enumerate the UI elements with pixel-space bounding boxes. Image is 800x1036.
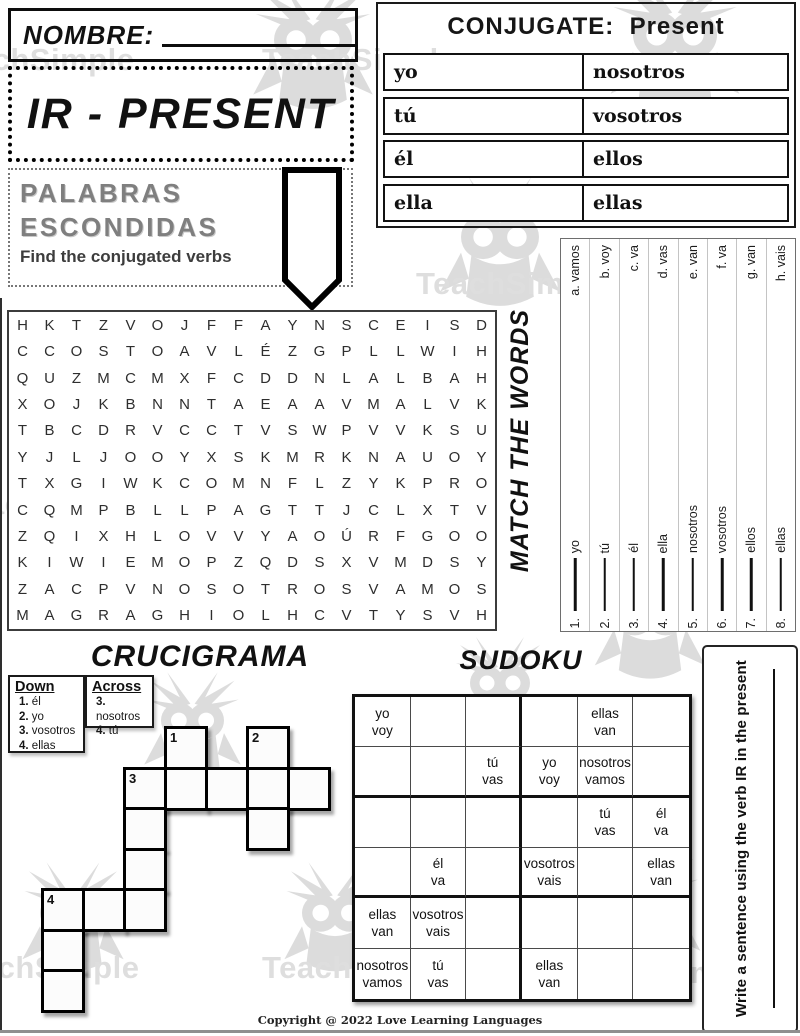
match-column: c. vaél3.: [620, 239, 649, 631]
word-search-letter: S: [441, 550, 468, 576]
word-search-letter: A: [387, 444, 414, 470]
word-search-letter: H: [171, 603, 198, 629]
word-search-letter: T: [360, 603, 387, 629]
word-search-letter: P: [90, 497, 117, 523]
sudoku-cell: [466, 697, 522, 747]
word-search-letter: M: [414, 576, 441, 602]
word-search-letter: R: [90, 603, 117, 629]
sudoku-cell: nosotrosvamos: [578, 747, 634, 797]
word-search-letter: I: [90, 470, 117, 496]
match-number-label: 7.: [744, 618, 758, 628]
sudoku-cell-line: vas: [482, 771, 503, 788]
word-search-letter: Z: [9, 576, 36, 602]
word-search-letter: D: [414, 550, 441, 576]
word-search-letter: D: [252, 365, 279, 391]
match-answer-blank: [691, 558, 694, 611]
word-search-letter: O: [144, 312, 171, 338]
sudoku-cell: [578, 898, 634, 948]
word-search-letter: C: [171, 418, 198, 444]
word-search-letter: G: [252, 497, 279, 523]
sudoku-cell-line: vamos: [362, 974, 402, 991]
sudoku-cell: yovoy: [355, 697, 411, 747]
sudoku-cell: [578, 949, 634, 999]
word-search-letter: N: [144, 576, 171, 602]
word-search-letter: N: [306, 365, 333, 391]
word-search-letter: N: [360, 444, 387, 470]
word-search-letter: J: [171, 312, 198, 338]
word-search-letter: V: [441, 391, 468, 417]
word-search-letter: L: [387, 338, 414, 364]
word-search-letter: A: [171, 338, 198, 364]
word-search-letter: A: [36, 576, 63, 602]
crossword-cell: 4: [41, 888, 85, 932]
pronoun-cell: él: [385, 142, 584, 176]
word-search-letter: T: [306, 497, 333, 523]
sudoku-cell-line: ellas: [591, 705, 619, 722]
word-search-letter: O: [441, 444, 468, 470]
word-search-letter: N: [171, 391, 198, 417]
down-clue: 1. él: [15, 695, 83, 710]
word-search-letter: U: [468, 418, 495, 444]
crossword-cell: [246, 767, 290, 811]
word-search-letter: P: [198, 550, 225, 576]
word-search-letter: X: [171, 365, 198, 391]
sudoku-cell-line: ellas: [535, 957, 563, 974]
pronoun-cell: vosotros: [584, 99, 787, 133]
sudoku-cell-line: va: [654, 822, 668, 839]
word-search-letter: U: [36, 365, 63, 391]
word-search-letter: O: [468, 470, 495, 496]
word-search-letter: O: [144, 338, 171, 364]
match-pronoun-label: tú: [598, 543, 612, 553]
word-search-letter: R: [117, 418, 144, 444]
word-search-letter: G: [63, 603, 90, 629]
match-pronoun-label: ellos: [744, 527, 758, 553]
word-search-letter: L: [414, 391, 441, 417]
crucigrama-title: CRUCIGRAMA: [91, 640, 309, 673]
pronoun-cell: nosotros: [584, 55, 787, 89]
word-search-letter: T: [225, 418, 252, 444]
sudoku-cell: yovoy: [522, 747, 578, 797]
word-search-letter: I: [36, 550, 63, 576]
sudoku-cell: [522, 697, 578, 747]
conjugate-row: yonosotros: [383, 53, 789, 91]
match-answer-blank: [603, 558, 606, 611]
match-number-label: 8.: [774, 618, 788, 628]
word-search-letter: A: [225, 391, 252, 417]
word-search-letter: O: [144, 444, 171, 470]
sudoku-cell-line: van: [650, 872, 672, 889]
word-search-letter: A: [279, 523, 306, 549]
crossword-cell: [123, 848, 167, 892]
worksheet-title: IR - PRESENT: [27, 90, 335, 139]
pronoun-cell: ellos: [584, 142, 787, 176]
match-title: MATCH THE WORDS: [506, 309, 535, 572]
word-search-letter: C: [63, 418, 90, 444]
word-search-letter: P: [333, 418, 360, 444]
match-answer-blank: [721, 558, 724, 611]
match-answer-blank: [750, 558, 753, 611]
word-search-letter: K: [414, 418, 441, 444]
word-search-letter: G: [63, 470, 90, 496]
sentence-blank-line: [773, 669, 775, 1008]
crossword-clue-number: 1: [170, 731, 205, 744]
sudoku-cell: élva: [411, 848, 467, 898]
down-label: Down: [15, 679, 83, 695]
sudoku-cell-line: tú: [599, 805, 610, 822]
word-search-letter: S: [441, 418, 468, 444]
word-search-letter: C: [225, 365, 252, 391]
word-search-letter: P: [414, 470, 441, 496]
word-search-letter: V: [333, 603, 360, 629]
sudoku-cell: [633, 898, 689, 948]
match-option-label: f. va: [715, 245, 729, 269]
word-search-letter: X: [9, 391, 36, 417]
word-search-letter: O: [171, 576, 198, 602]
word-search-letter: N: [306, 312, 333, 338]
crossword-cell: 1: [164, 726, 208, 770]
word-search-letter: T: [198, 391, 225, 417]
word-search-letter: Q: [36, 497, 63, 523]
match-number-label: 3.: [627, 618, 641, 628]
word-search-letter: R: [279, 576, 306, 602]
write-sentence-box: Write a sentence using the verb IR in th…: [702, 645, 798, 1033]
word-search-letter: A: [306, 391, 333, 417]
conjugate-row: ellaellas: [383, 184, 789, 222]
word-search-letter: I: [90, 550, 117, 576]
word-search-letter: Y: [387, 603, 414, 629]
word-search-letter: K: [387, 470, 414, 496]
sudoku-cell-line: ellas: [647, 855, 675, 872]
word-search-letter: A: [387, 391, 414, 417]
name-blank-line: [162, 44, 355, 47]
word-search-letter: C: [9, 338, 36, 364]
word-search-letter: C: [360, 312, 387, 338]
word-search-letter: A: [252, 312, 279, 338]
word-search-letter: V: [360, 576, 387, 602]
word-search-letter: L: [144, 497, 171, 523]
word-search-letter: K: [468, 391, 495, 417]
word-search-letter: T: [9, 470, 36, 496]
match-number-label: 5.: [686, 618, 700, 628]
word-search-letter: V: [333, 391, 360, 417]
word-search-letter: K: [252, 444, 279, 470]
word-search-letter: V: [252, 418, 279, 444]
word-search-letter: O: [225, 603, 252, 629]
sudoku-cell: [466, 798, 522, 848]
word-search-letter: R: [441, 470, 468, 496]
word-search-letter: U: [414, 444, 441, 470]
sudoku-cell-line: vas: [427, 974, 448, 991]
word-search-letter: L: [252, 603, 279, 629]
pronoun-cell: ellas: [584, 186, 787, 220]
word-search-letter: O: [441, 523, 468, 549]
word-search-letter: O: [441, 576, 468, 602]
word-search-letter: T: [279, 497, 306, 523]
word-search-letter: K: [144, 470, 171, 496]
word-search-letter: F: [198, 365, 225, 391]
word-search-letter: Z: [63, 365, 90, 391]
sudoku-cell: [522, 898, 578, 948]
sudoku-cell: ellasvan: [633, 848, 689, 898]
word-search-letter: L: [387, 497, 414, 523]
sudoku-cell: [633, 747, 689, 797]
match-answer-blank: [574, 558, 577, 611]
sudoku-cell: túvas: [411, 949, 467, 999]
sudoku-cell-line: van: [594, 722, 616, 739]
word-search-letter: H: [468, 365, 495, 391]
word-search-letter: S: [468, 576, 495, 602]
word-search-letter: É: [252, 338, 279, 364]
crucigrama-title-wrap: CRUCIGRAMA: [25, 640, 375, 674]
word-search-letter: Z: [333, 470, 360, 496]
page-bottom-edge: [0, 1030, 800, 1033]
sudoku-cell-line: nosotros: [356, 957, 408, 974]
word-search-letter: B: [414, 365, 441, 391]
word-search-letter: S: [441, 312, 468, 338]
word-search-letter: S: [279, 418, 306, 444]
word-search-letter: L: [333, 365, 360, 391]
word-search-letter: Z: [225, 550, 252, 576]
word-search-letter: M: [90, 365, 117, 391]
sudoku-cell-line: nosotros: [579, 754, 631, 771]
sudoku-cell: [578, 848, 634, 898]
word-search-letter: O: [225, 576, 252, 602]
word-search-letter: C: [306, 603, 333, 629]
sudoku-cell: ellasvan: [578, 697, 634, 747]
sudoku-cell: [633, 949, 689, 999]
across-clue: 3. nosotros: [92, 695, 152, 724]
word-search-letter: E: [117, 550, 144, 576]
crossword-cell: [246, 807, 290, 851]
sudoku-cell: [466, 949, 522, 999]
sudoku-cell-line: yo: [375, 705, 389, 722]
conjugate-section: CONJUGATE: Present yonosotrostúvosotrosé…: [376, 2, 796, 228]
name-label: NOMBRE:: [23, 20, 154, 51]
sudoku-cell: vosotrosvais: [522, 848, 578, 898]
word-search-letter: B: [36, 418, 63, 444]
word-search-letter: N: [144, 391, 171, 417]
word-search-letter: G: [414, 523, 441, 549]
word-search-letter: Z: [279, 338, 306, 364]
sudoku-cell: nosotrosvamos: [355, 949, 411, 999]
sudoku-cell: [633, 697, 689, 747]
crossword-cell: [41, 969, 85, 1013]
word-search-letter: O: [63, 338, 90, 364]
word-search-letter: X: [198, 444, 225, 470]
word-search-letter: S: [333, 312, 360, 338]
crossword-cell: 3: [123, 767, 167, 811]
crossword-cell: [287, 767, 331, 811]
word-search-letter: O: [306, 576, 333, 602]
sudoku-cell-line: él: [656, 805, 667, 822]
match-title-wrap: MATCH THE WORDS: [498, 316, 542, 566]
conjugate-row: élellos: [383, 140, 789, 178]
word-search-letter: Ú: [333, 523, 360, 549]
word-search-letter: C: [360, 497, 387, 523]
sudoku-cell-line: voy: [372, 722, 393, 739]
sudoku-cell: ellasvan: [355, 898, 411, 948]
match-pronoun-label: ellas: [774, 527, 788, 553]
match-pronoun-label: nosotros: [686, 505, 700, 553]
word-search-letter: K: [36, 312, 63, 338]
word-search-letter: V: [198, 523, 225, 549]
match-pronoun-label: ella: [656, 534, 670, 553]
conjugate-rows: yonosotrostúvosotrosélellosellaellas: [378, 53, 794, 222]
word-search-letter: V: [117, 576, 144, 602]
word-search-letter: O: [306, 523, 333, 549]
word-search-letter: C: [198, 418, 225, 444]
word-search-letter: M: [225, 470, 252, 496]
sudoku-cell-line: vas: [594, 822, 615, 839]
word-search-letter: V: [387, 418, 414, 444]
word-search-grid: HKTZVOJFFAYNSCEISDCCOSTOAVLÉZGPLLWIHQUZM…: [7, 310, 497, 631]
worksheet-page: TeachSimpleTeachSimpleTeachSimpleTeachSi…: [0, 0, 800, 1036]
word-search-letter: Y: [468, 444, 495, 470]
sudoku-cell-line: vosotros: [412, 906, 463, 923]
crossword-cell: [164, 767, 208, 811]
word-search-letter: V: [225, 523, 252, 549]
word-search-letter: K: [9, 550, 36, 576]
match-option-label: g. van: [744, 245, 758, 279]
word-search-letter: Q: [252, 550, 279, 576]
word-search-letter: V: [198, 338, 225, 364]
sudoku-cell-line: tú: [487, 754, 498, 771]
word-search-letter: X: [333, 550, 360, 576]
pronoun-cell: tú: [385, 99, 584, 133]
word-search-letter: Z: [9, 523, 36, 549]
word-search-letter: C: [36, 338, 63, 364]
sudoku-cell-line: va: [431, 872, 445, 889]
word-search-letter: R: [360, 523, 387, 549]
word-search-letter: O: [171, 550, 198, 576]
crossword-cell: [123, 888, 167, 932]
match-option-label: b. voy: [598, 245, 612, 278]
word-search-letter: L: [225, 338, 252, 364]
sudoku-cell-line: van: [538, 974, 560, 991]
word-search-letter: E: [252, 391, 279, 417]
word-search-letter: P: [333, 338, 360, 364]
copyright-text: Copyright @ 2022 Love Learning Languages: [0, 1013, 800, 1027]
word-search-letter: X: [36, 470, 63, 496]
match-column: h. vaisellas8.: [767, 239, 795, 631]
sudoku-cell-line: voy: [539, 771, 560, 788]
word-search-letter: A: [360, 365, 387, 391]
match-answer-blank: [780, 558, 783, 611]
name-box: NOMBRE:: [8, 8, 358, 62]
sudoku-cell-line: vosotros: [524, 855, 575, 872]
sudoku-grid: yovoyellasvantúvasyovoynosotrosvamostúva…: [352, 694, 692, 1002]
word-search-letter: C: [171, 470, 198, 496]
match-number-label: 4.: [656, 618, 670, 628]
word-search-letter: M: [9, 603, 36, 629]
word-search-letter: V: [360, 418, 387, 444]
word-search-letter: R: [306, 444, 333, 470]
match-number-label: 1.: [568, 618, 582, 628]
word-search-letter: H: [117, 523, 144, 549]
crossword-cell: 2: [246, 726, 290, 770]
word-search-letter: M: [360, 391, 387, 417]
word-search-letter: D: [279, 550, 306, 576]
sudoku-cell: [522, 798, 578, 848]
word-search-letter: V: [360, 550, 387, 576]
word-search-letter: W: [306, 418, 333, 444]
match-column: e. vannosotros5.: [679, 239, 708, 631]
word-search-letter: Z: [90, 312, 117, 338]
word-search-letter: F: [279, 470, 306, 496]
word-search-letter: T: [63, 312, 90, 338]
crossword-grid: 1234: [41, 726, 381, 1026]
word-search-letter: A: [117, 603, 144, 629]
crossword-clue-number: 2: [252, 731, 287, 744]
word-search-letter: W: [117, 470, 144, 496]
word-search-letter: S: [225, 444, 252, 470]
sudoku-cell: túvas: [466, 747, 522, 797]
word-search-letter: A: [387, 576, 414, 602]
word-search-letter: P: [198, 497, 225, 523]
word-search-letter: A: [441, 365, 468, 391]
word-search-letter: B: [117, 497, 144, 523]
word-search-letter: O: [468, 523, 495, 549]
crossword-cell: [82, 888, 126, 932]
match-number-label: 2.: [598, 618, 612, 628]
sudoku-cell: [355, 747, 411, 797]
word-search-letter: M: [144, 550, 171, 576]
word-search-letter: S: [333, 576, 360, 602]
match-pronoun-label: vosotros: [715, 506, 729, 553]
conjugate-row: túvosotros: [383, 97, 789, 135]
word-search-letter: I: [63, 523, 90, 549]
match-option-label: c. va: [627, 245, 641, 271]
sudoku-title-wrap: SUDOKU: [350, 645, 692, 676]
crossword-clue-number: 3: [129, 772, 164, 785]
match-option-label: h. vais: [774, 245, 788, 281]
sudoku-cell: vosotrosvais: [411, 898, 467, 948]
word-search-letter: Y: [468, 550, 495, 576]
match-column: b. voytú2.: [590, 239, 619, 631]
word-search-letter: Y: [9, 444, 36, 470]
word-search-letter: K: [90, 391, 117, 417]
sudoku-cell-line: tú: [432, 957, 443, 974]
word-search-letter: L: [306, 470, 333, 496]
match-column: d. vasella4.: [649, 239, 678, 631]
word-search-letter: E: [387, 312, 414, 338]
word-search-letter: I: [414, 312, 441, 338]
sudoku-cell: [355, 798, 411, 848]
word-search-letter: L: [63, 444, 90, 470]
match-answer-blank: [662, 558, 665, 611]
word-search-letter: T: [117, 338, 144, 364]
word-search-letter: S: [198, 576, 225, 602]
down-clue: 2. yo: [15, 710, 83, 725]
word-search-letter: N: [252, 470, 279, 496]
match-column: a. vamosyo1.: [561, 239, 590, 631]
across-clues-box: Across 3. nosotros4. tú: [85, 675, 154, 728]
word-search-letter: S: [306, 550, 333, 576]
match-column: g. vanellos7.: [737, 239, 766, 631]
word-search-letter: W: [414, 338, 441, 364]
sudoku-cell: [411, 747, 467, 797]
word-search-letter: S: [90, 338, 117, 364]
across-label: Across: [92, 679, 152, 695]
word-search-letter: L: [387, 365, 414, 391]
word-search-letter: Q: [9, 365, 36, 391]
sudoku-cell: élva: [633, 798, 689, 848]
crossword-cell: [41, 929, 85, 973]
word-search-letter: H: [468, 338, 495, 364]
sudoku-cell: [466, 898, 522, 948]
sudoku-cell-line: vamos: [585, 771, 625, 788]
